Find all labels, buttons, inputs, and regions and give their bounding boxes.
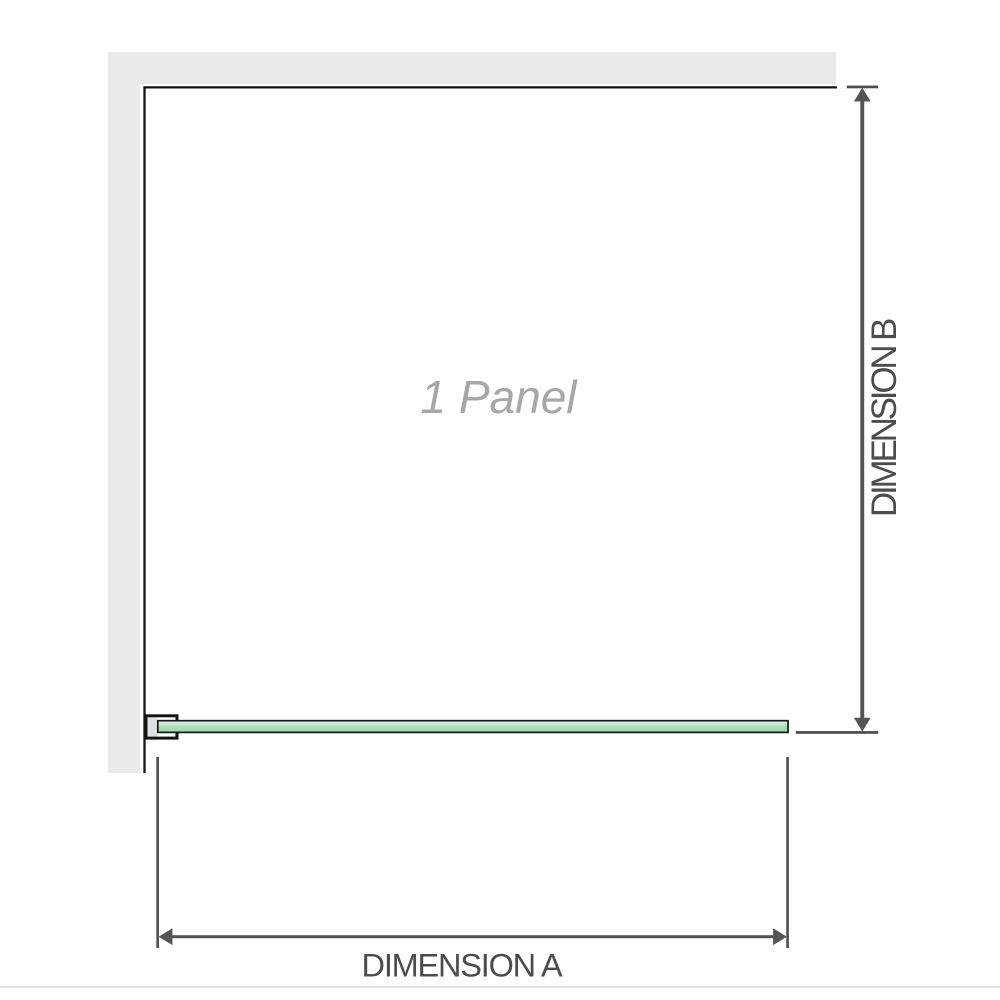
- svg-text:DIMENSION A: DIMENSION A: [362, 948, 563, 984]
- svg-text:1 Panel: 1 Panel: [420, 371, 578, 423]
- svg-text:DIMENSION B: DIMENSION B: [865, 319, 904, 517]
